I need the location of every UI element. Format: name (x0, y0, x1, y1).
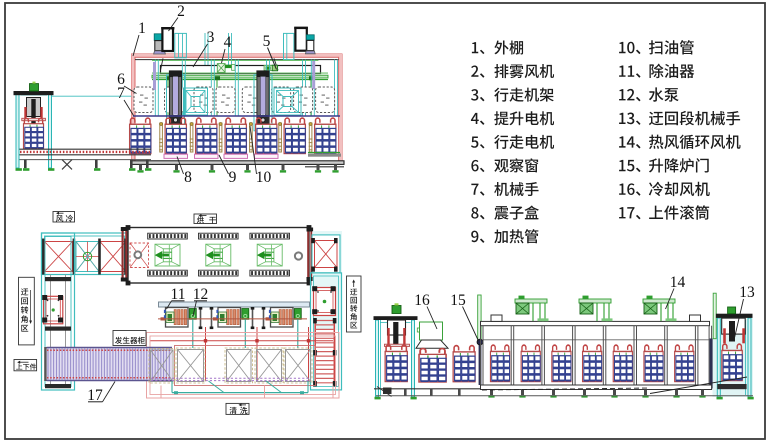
svg-text:1: 1 (138, 20, 146, 37)
svg-text:9: 9 (229, 169, 237, 186)
svg-text:5: 5 (263, 33, 271, 50)
svg-text:15: 15 (450, 292, 466, 309)
svg-text:2: 2 (177, 3, 185, 20)
svg-text:16: 16 (414, 292, 430, 309)
svg-text:10: 10 (256, 169, 272, 186)
svg-text:14: 14 (670, 274, 686, 291)
svg-text:3: 3 (207, 29, 215, 46)
svg-text:8: 8 (184, 169, 192, 186)
svg-text:13: 13 (739, 284, 755, 301)
svg-text:7: 7 (117, 85, 125, 102)
svg-text:4: 4 (224, 34, 232, 51)
